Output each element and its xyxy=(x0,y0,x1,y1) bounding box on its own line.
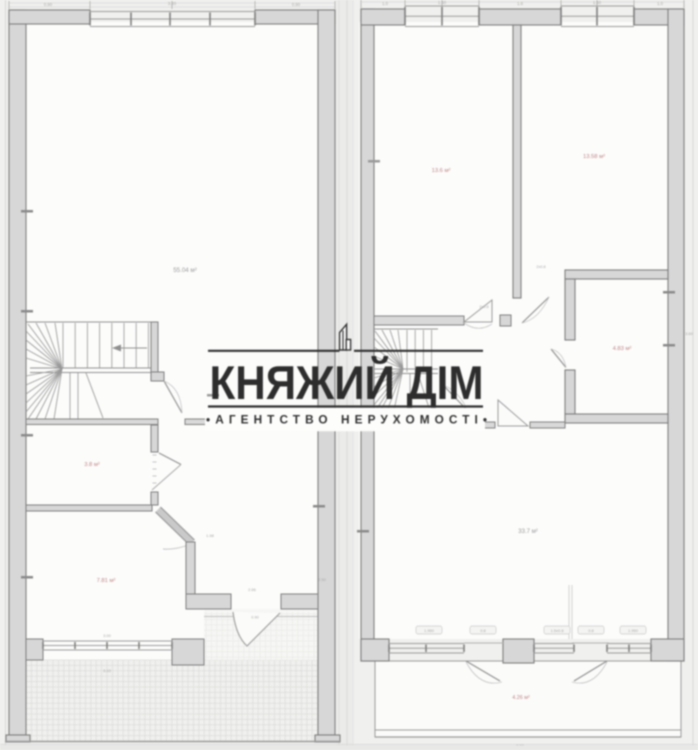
svg-text:3.00: 3.00 xyxy=(103,633,112,638)
svg-text:7.81 м²: 7.81 м² xyxy=(97,578,116,584)
svg-text:2x0.8: 2x0.8 xyxy=(536,265,545,269)
svg-text:0.90: 0.90 xyxy=(251,616,258,620)
svg-text:1.50: 1.50 xyxy=(438,0,447,5)
svg-text:1.50: 1.50 xyxy=(593,0,602,5)
svg-text:1.0: 1.0 xyxy=(382,1,388,6)
svg-text:13.58 м²: 13.58 м² xyxy=(583,154,605,160)
svg-text:1.6: 1.6 xyxy=(517,1,523,6)
svg-text:33.7 м²: 33.7 м² xyxy=(518,529,537,535)
svg-text:2.66: 2.66 xyxy=(248,587,257,592)
svg-text:0.8: 0.8 xyxy=(588,628,594,633)
svg-text:1.950: 1.950 xyxy=(628,628,639,633)
svg-text:13.6 м²: 13.6 м² xyxy=(432,168,451,174)
svg-text:КНЯЖИЙ ДІМ: КНЯЖИЙ ДІМ xyxy=(210,356,484,409)
svg-text:0.8: 0.8 xyxy=(480,628,486,633)
svg-text:55.04 м²: 55.04 м² xyxy=(173,267,197,274)
svg-text:3.8 м²: 3.8 м² xyxy=(84,462,100,468)
svg-text:3.20: 3.20 xyxy=(168,1,177,6)
svg-text:1.98: 1.98 xyxy=(206,533,215,538)
svg-text:2x0.8: 2x0.8 xyxy=(479,305,488,309)
svg-text:1.5x0.8: 1.5x0.8 xyxy=(550,628,564,633)
svg-text:3.60: 3.60 xyxy=(685,331,694,336)
svg-text:0.90: 0.90 xyxy=(44,2,53,7)
svg-text:3.10: 3.10 xyxy=(103,668,112,673)
svg-text:1.950: 1.950 xyxy=(424,628,435,633)
svg-text:1.0: 1.0 xyxy=(657,1,663,6)
svg-text:0.90: 0.90 xyxy=(292,2,301,7)
svg-text:2.50: 2.50 xyxy=(318,577,327,582)
svg-text:4.83 м²: 4.83 м² xyxy=(613,346,632,352)
svg-text:4.26 м²: 4.26 м² xyxy=(512,695,530,701)
